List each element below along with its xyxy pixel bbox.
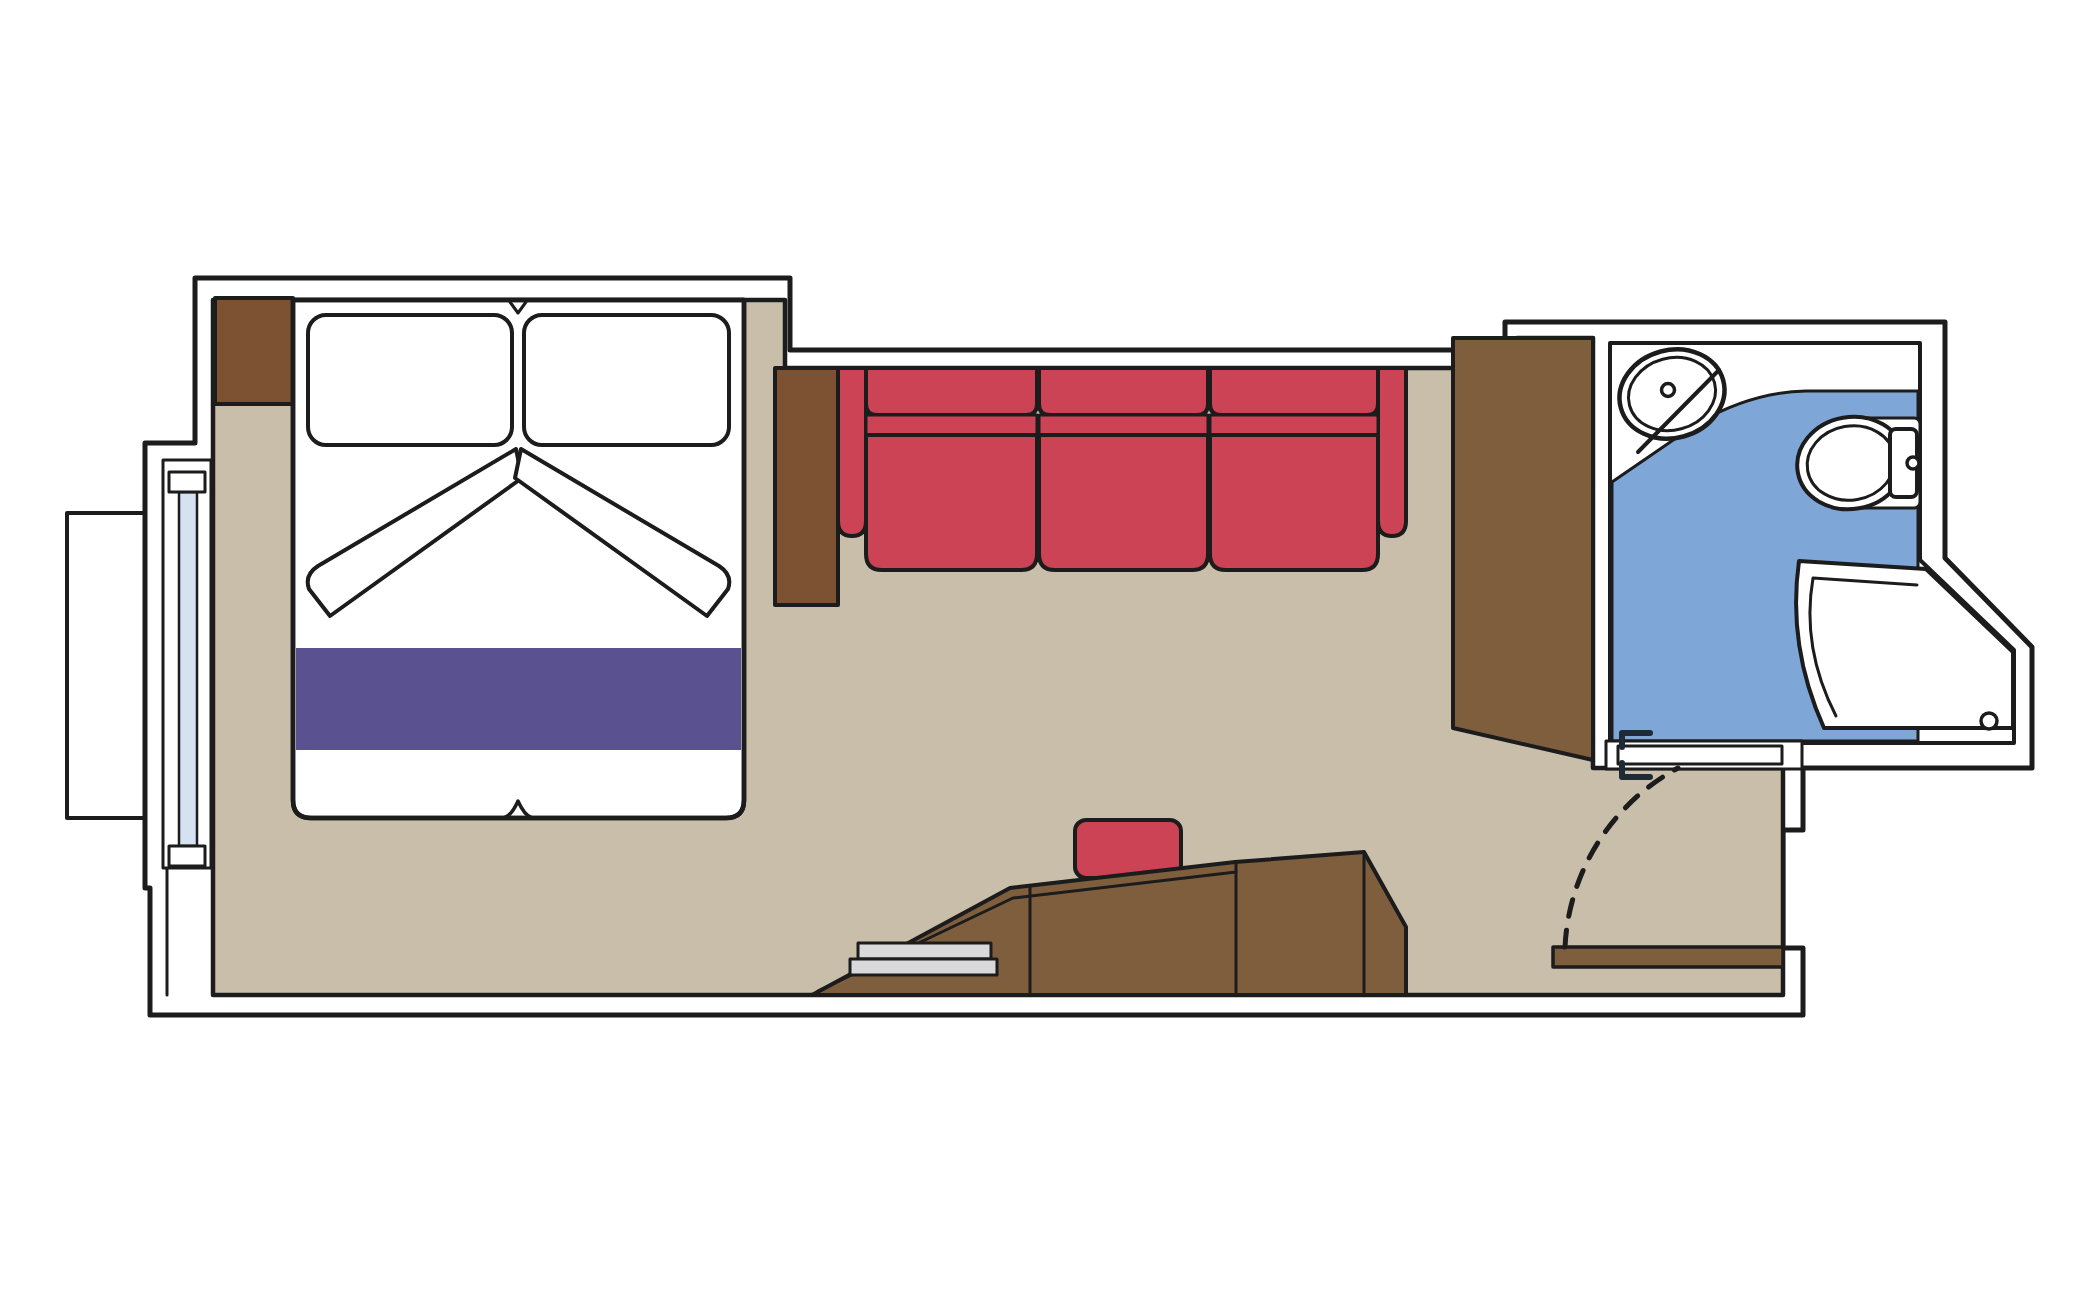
wardrobe — [1453, 338, 1593, 760]
window-sill-top — [169, 472, 205, 492]
nightstand-left — [215, 298, 293, 404]
pillow-left — [308, 315, 512, 445]
sliding-door-leaf — [1618, 746, 1782, 764]
window-sill-bottom — [169, 846, 205, 866]
sink-drain-icon — [1662, 384, 1675, 397]
sofa-seat-cushion-1 — [866, 435, 1037, 570]
sofa-armrest-right — [1378, 368, 1406, 536]
balcony-partition — [67, 513, 145, 818]
sofa-back-cushion-3 — [1210, 368, 1378, 415]
bed-runner — [296, 648, 741, 750]
floor-plan-canvas — [0, 0, 2099, 1299]
toilet-flush-button — [1907, 457, 1919, 469]
shower-drain-icon — [1981, 713, 1997, 729]
sofa — [838, 368, 1406, 570]
window-glass — [179, 492, 197, 846]
sofa-seat-cushion-3 — [1210, 435, 1378, 570]
pillow-right — [524, 315, 729, 445]
desk-step-lower — [850, 959, 997, 975]
window — [163, 460, 211, 868]
floor-plan-page — [0, 0, 2099, 1299]
sofa-mid-band-1 — [866, 415, 1037, 435]
nightstand-right — [775, 368, 838, 605]
sofa-mid-band-2 — [1039, 415, 1208, 435]
sofa-back-cushion-1 — [866, 368, 1037, 415]
sofa-armrest-left — [838, 368, 866, 536]
sofa-mid-band-3 — [1210, 415, 1378, 435]
sofa-back-cushion-2 — [1039, 368, 1208, 415]
desk-step-upper — [858, 943, 991, 959]
entry-door-leaf — [1553, 947, 1783, 967]
plan-root — [0, 0, 2099, 1299]
bed — [293, 300, 744, 818]
sofa-seat-cushion-2 — [1039, 435, 1208, 570]
bathroom-sliding-door — [1606, 733, 1802, 777]
